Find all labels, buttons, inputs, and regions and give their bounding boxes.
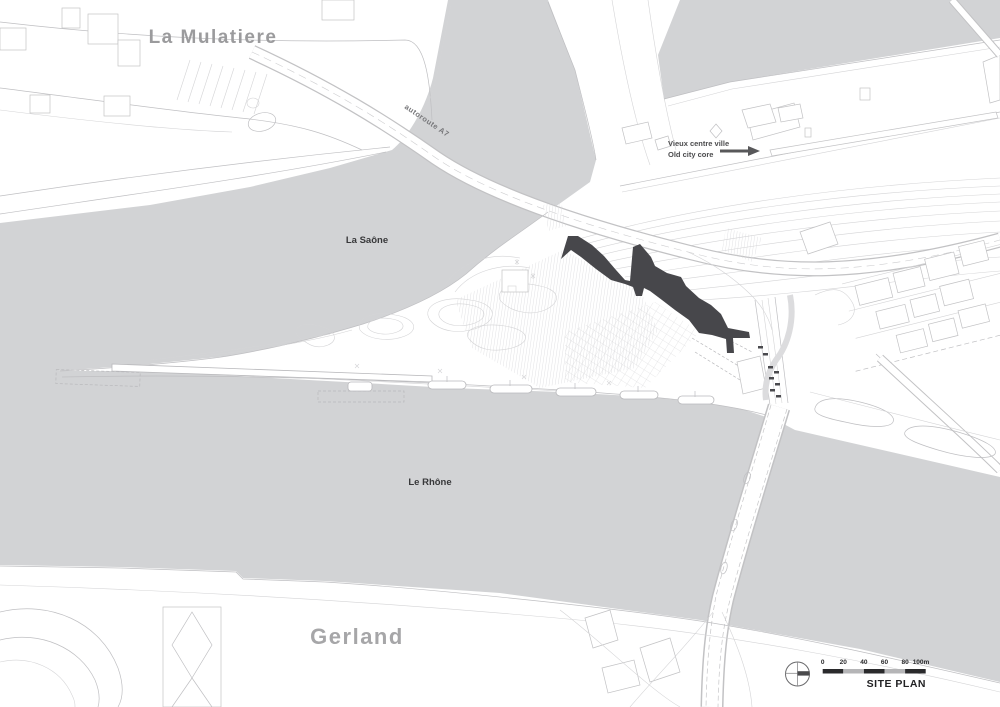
label-old-city-en: Old city core <box>668 150 713 159</box>
crosshair-circle-icon <box>786 662 810 686</box>
label-le-rhone: Le Rhône <box>408 477 451 488</box>
label-la-saone: La Saône <box>346 235 388 246</box>
label-la-mulatiere: La Mulatiere <box>149 27 278 48</box>
scale-tick-40: 40 <box>860 659 868 666</box>
label-gerland: Gerland <box>310 624 404 649</box>
scale-tick-60: 60 <box>881 659 889 666</box>
site-plan-drawing: La Mulatiere Gerland La Saône Le Rhône V… <box>0 0 1000 707</box>
scale-tick-20: 20 <box>840 659 848 666</box>
legend: 0 20 40 60 80 100m SITE PLAN <box>786 659 930 690</box>
label-old-city-fr: Vieux centre ville <box>668 139 729 148</box>
rhone-upstream-water <box>658 0 1000 99</box>
site-plan-caption: SITE PLAN <box>867 678 926 690</box>
scale-bar: 0 20 40 60 80 100m SITE PLAN <box>821 659 930 690</box>
scale-tick-80: 80 <box>901 659 909 666</box>
scale-tick-100m: 100m <box>913 659 930 666</box>
ramp-hatch <box>543 200 566 231</box>
hillside-plot-lines <box>177 60 267 114</box>
right-arrow-head <box>748 146 760 156</box>
site-plan-canvas: La Mulatiere Gerland La Saône Le Rhône V… <box>0 0 1000 707</box>
scale-tick-0: 0 <box>821 659 825 666</box>
